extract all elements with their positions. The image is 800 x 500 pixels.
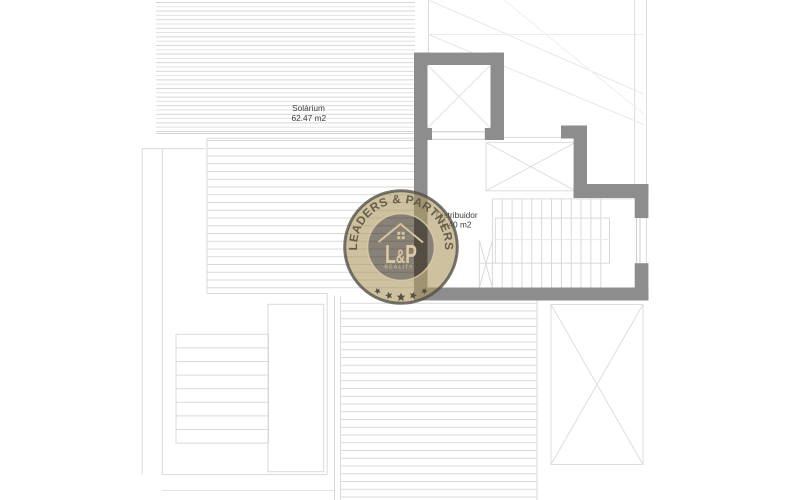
svg-text:Solárium: Solárium	[292, 103, 325, 113]
svg-text:62.47 m2: 62.47 m2	[292, 113, 327, 123]
svg-text:REALITY: REALITY	[384, 264, 413, 270]
